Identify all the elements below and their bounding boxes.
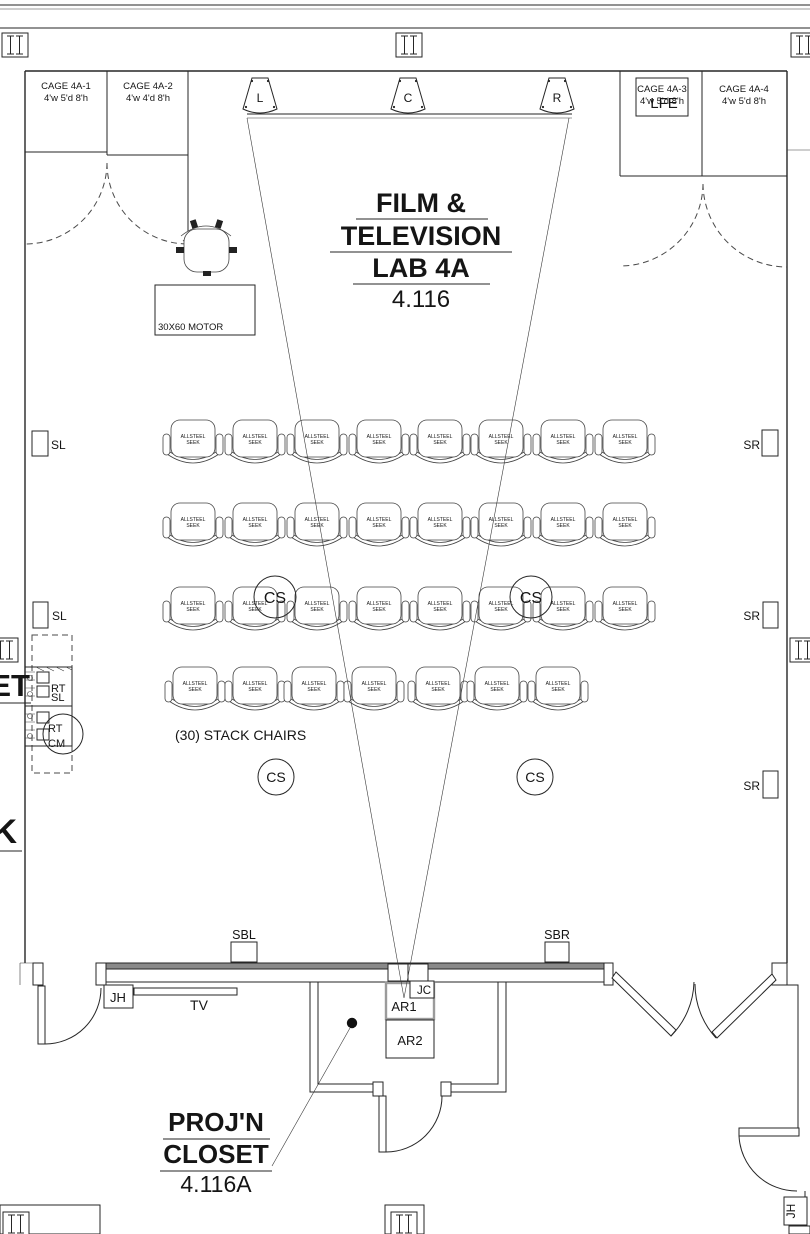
stack-chair (284, 667, 344, 710)
tv-label: TV (190, 997, 209, 1013)
tv-unit: TV (134, 988, 237, 1013)
jh2-label: JH (784, 1204, 798, 1219)
room-title-line2: TELEVISION (341, 221, 502, 251)
stack-chair (533, 420, 593, 463)
floor-plan-svg: ALLSTEEL SEEK CAGE 4A-1 4'w 5'd 8'h CAGE… (0, 0, 810, 1234)
stack-chair (225, 420, 285, 463)
stack-chair (410, 503, 470, 546)
column-icon (391, 1212, 417, 1234)
stack-chair (410, 420, 470, 463)
edge-labels-left: ET K (0, 668, 31, 851)
room-title-line1: FILM & (376, 188, 466, 218)
double-door (612, 972, 776, 1038)
stack-chair (528, 667, 588, 710)
stack-chair (410, 587, 470, 630)
projector-dot (347, 1018, 357, 1028)
sr-speaker-label: SR (743, 609, 760, 623)
sr-speaker-label: SR (743, 779, 760, 793)
corridor-wall-lines (0, 5, 810, 28)
floor-plan-sheet: ALLSTEEL SEEK CAGE 4A-1 4'w 5'd 8'h CAGE… (0, 0, 810, 1234)
speaker-left-label: L (257, 91, 264, 105)
column-icon (2, 33, 28, 57)
column-icon (396, 33, 422, 57)
cage-4a4-dims: 4'w 5'd 8'h (722, 96, 766, 107)
column-icon (790, 638, 810, 662)
equipment-rack: RT SL RT CM (25, 635, 83, 773)
cs-label: CS (264, 590, 286, 607)
speaker-right-label: R (553, 91, 562, 105)
stack-chair (471, 503, 531, 546)
stack-chair (163, 420, 223, 463)
cs-label: CS (525, 769, 544, 785)
closet-title-line1: PROJ'N (168, 1107, 264, 1137)
stack-chairs-note: (30) STACK CHAIRS (175, 727, 306, 743)
stack-chair (163, 503, 223, 546)
motor-label: 30X60 MOTOR (158, 322, 223, 333)
rack-cm-label: CM (48, 738, 65, 750)
cs-label: CS (266, 769, 285, 785)
cage-4a4: CAGE 4A-4 4'w 5'd 8'h (719, 84, 769, 107)
cage-4a1-name: CAGE 4A-1 (41, 81, 91, 92)
stack-chair (163, 587, 223, 630)
column-icon (0, 638, 18, 662)
task-chair (176, 219, 237, 276)
projection-closet: JC AR1 AR2 (310, 964, 506, 1152)
jc-label: JC (417, 985, 431, 997)
cage-4a2: CAGE 4A-2 4'w 4'd 8'h (107, 71, 188, 232)
projection-port (408, 964, 428, 981)
room-number: 4.116 (392, 286, 450, 313)
lfe-speaker-label: LFE (650, 95, 678, 112)
chair-rows (163, 420, 655, 710)
stack-chair (344, 667, 404, 710)
k-label: K (0, 813, 17, 851)
cage-4a3-name: CAGE 4A-3 (637, 84, 687, 95)
sbr-speaker-label: SBR (544, 928, 570, 942)
structural-columns-bottom (0, 1205, 424, 1234)
closet-title-line2: CLOSET (163, 1139, 269, 1169)
stack-chair (533, 503, 593, 546)
sr-speaker-label: SR (743, 438, 760, 452)
cage-4a4-name: CAGE 4A-4 (719, 84, 769, 95)
structural-columns-top (2, 33, 810, 57)
cage-4a1-dims: 4'w 5'd 8'h (44, 93, 88, 104)
cage-4a2-dims: 4'w 4'd 8'h (126, 93, 170, 104)
et-label: ET (0, 668, 30, 703)
surround-speakers: SL SL SR SR SR SBL SBR (32, 430, 778, 962)
room-title-line3: LAB 4A (372, 253, 470, 283)
stack-chair (349, 503, 409, 546)
stack-chair (165, 667, 225, 710)
sl-speaker-label: SL (51, 438, 66, 452)
stack-chair (287, 420, 347, 463)
stack-chair (595, 420, 655, 463)
jh-panel: JH (104, 985, 133, 1008)
speaker-center-label: C (404, 91, 413, 105)
cage-doors-left (25, 163, 188, 244)
closet-title-block: PROJ'N CLOSET 4.116A (160, 1028, 350, 1197)
room-title-block: FILM & TELEVISION LAB 4A 4.116 (330, 188, 512, 313)
cage-4a2-name: CAGE 4A-2 (123, 81, 173, 92)
column-icon (3, 1212, 29, 1234)
stack-chair (225, 667, 285, 710)
projection-port (388, 964, 408, 981)
screen-speakers: L C R (243, 78, 574, 118)
stack-chair (595, 587, 655, 630)
stack-chair (471, 420, 531, 463)
stack-chair (595, 503, 655, 546)
jh-label: JH (110, 990, 126, 1005)
stack-chair (349, 587, 409, 630)
ar1-label: AR1 (391, 999, 416, 1014)
cage-doors-right (620, 184, 787, 267)
rack-rt2-label: RT (48, 723, 63, 735)
column-icon (791, 33, 810, 57)
rack-sl-label: SL (51, 692, 64, 704)
stack-chair (467, 667, 527, 710)
sbl-speaker-label: SBL (232, 928, 256, 942)
door-bottom-left (38, 986, 101, 1044)
closet-room-number: 4.116A (180, 1171, 252, 1197)
stack-chair (225, 503, 285, 546)
stack-chair (349, 420, 409, 463)
ar2-label: AR2 (397, 1033, 422, 1048)
motor-unit: 30X60 MOTOR (155, 285, 255, 335)
cs-label: CS (520, 590, 542, 607)
cage-4a1: CAGE 4A-1 4'w 5'd 8'h (25, 71, 107, 155)
sl-speaker-label: SL (52, 609, 67, 623)
door-lower-right: JH (739, 985, 810, 1234)
